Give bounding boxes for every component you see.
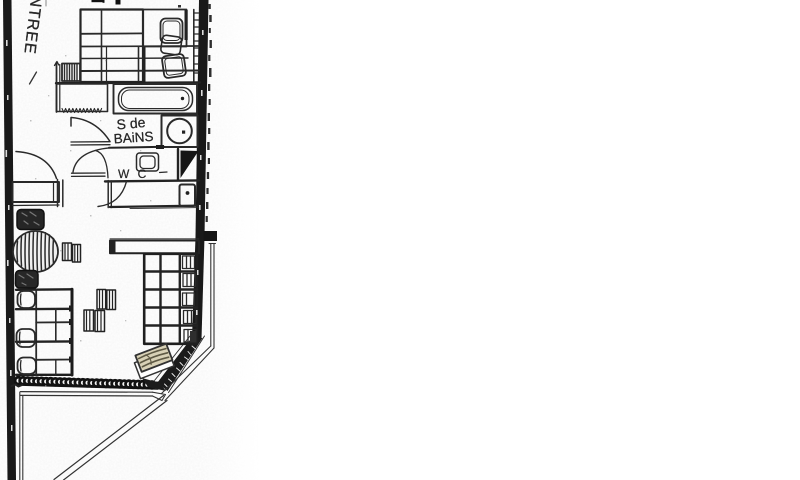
svg-text:BAiNS: BAiNS	[113, 129, 154, 147]
svg-text:W C: W C	[118, 167, 149, 181]
